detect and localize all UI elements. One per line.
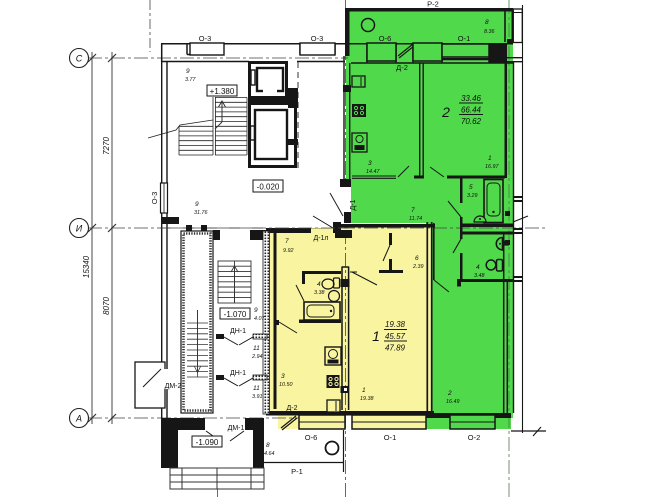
svg-text:-0.020: -0.020: [257, 183, 280, 192]
svg-text:О-3: О-3: [199, 34, 212, 43]
svg-text:ДН-1: ДН-1: [230, 370, 246, 377]
svg-text:66.44: 66.44: [461, 106, 482, 115]
svg-text:1: 1: [488, 155, 492, 162]
svg-text:8: 8: [485, 19, 489, 26]
svg-text:О-3: О-3: [150, 192, 159, 205]
svg-text:4: 4: [317, 281, 321, 288]
svg-text:2.39: 2.39: [412, 264, 424, 270]
svg-text:33.46: 33.46: [461, 94, 482, 103]
svg-text:15340: 15340: [82, 255, 91, 278]
svg-text:О-1: О-1: [458, 34, 471, 43]
svg-text:16.97: 16.97: [485, 164, 499, 170]
svg-text:8.36: 8.36: [484, 29, 495, 35]
svg-text:9: 9: [254, 307, 258, 314]
svg-text:ДМ-1: ДМ-1: [228, 425, 245, 432]
svg-text:7: 7: [411, 207, 415, 214]
svg-text:11: 11: [253, 385, 260, 392]
svg-text:О-6: О-6: [305, 433, 318, 442]
svg-text:Д-1л: Д-1л: [313, 235, 328, 242]
svg-text:4.07: 4.07: [254, 316, 265, 322]
svg-text:9.92: 9.92: [283, 248, 294, 254]
svg-text:4.64: 4.64: [264, 451, 275, 457]
svg-text:8070: 8070: [102, 297, 111, 315]
svg-text:8: 8: [266, 442, 270, 449]
svg-text:ДМ-2: ДМ-2: [165, 383, 182, 390]
svg-text:11: 11: [253, 345, 260, 352]
svg-text:-1.090: -1.090: [196, 438, 219, 447]
svg-text:И: И: [76, 224, 83, 234]
svg-text:3.38: 3.38: [314, 290, 325, 296]
svg-text:О-3: О-3: [311, 34, 324, 43]
svg-text:ДН-1: ДН-1: [230, 328, 246, 335]
svg-text:Д-2: Д-2: [396, 63, 408, 72]
svg-text:14.47: 14.47: [366, 169, 380, 175]
svg-text:6: 6: [415, 255, 419, 262]
svg-text:-1.070: -1.070: [224, 310, 247, 319]
svg-text:7: 7: [285, 238, 289, 245]
svg-text:3: 3: [368, 160, 372, 167]
svg-text:О-1: О-1: [384, 433, 397, 442]
svg-text:2: 2: [441, 104, 450, 120]
svg-text:2.94: 2.94: [251, 354, 263, 360]
svg-text:3: 3: [281, 373, 285, 380]
svg-text:О-2: О-2: [468, 433, 481, 442]
svg-text:2: 2: [447, 390, 452, 397]
svg-text:4: 4: [476, 264, 480, 271]
svg-text:О-6: О-6: [379, 34, 392, 43]
svg-text:7270: 7270: [102, 137, 111, 155]
svg-text:Р-2: Р-2: [427, 0, 439, 9]
svg-text:+1.380: +1.380: [210, 87, 235, 96]
svg-text:31.76: 31.76: [194, 210, 208, 216]
svg-text:1: 1: [372, 328, 380, 344]
svg-text:С: С: [76, 54, 83, 64]
svg-text:Д-1: Д-1: [350, 199, 357, 210]
svg-text:3.77: 3.77: [185, 77, 196, 83]
svg-text:16.49: 16.49: [446, 399, 460, 405]
svg-text:Р-1: Р-1: [291, 467, 303, 476]
svg-text:10.50: 10.50: [279, 382, 293, 388]
svg-text:70.62: 70.62: [461, 117, 482, 126]
svg-text:5: 5: [469, 184, 473, 191]
svg-text:47.89: 47.89: [385, 344, 406, 353]
svg-text:9: 9: [195, 201, 199, 208]
svg-text:А: А: [75, 414, 82, 424]
svg-text:45.57: 45.57: [385, 332, 406, 341]
svg-text:3.48: 3.48: [474, 273, 485, 279]
svg-text:19.38: 19.38: [385, 320, 406, 329]
svg-text:19.38: 19.38: [360, 396, 374, 402]
svg-text:11.74: 11.74: [409, 216, 422, 222]
svg-text:1: 1: [362, 387, 366, 394]
svg-text:3.91: 3.91: [252, 394, 263, 400]
svg-text:9: 9: [186, 68, 190, 75]
svg-text:3.29: 3.29: [467, 193, 478, 199]
svg-text:Д-2: Д-2: [287, 405, 298, 412]
